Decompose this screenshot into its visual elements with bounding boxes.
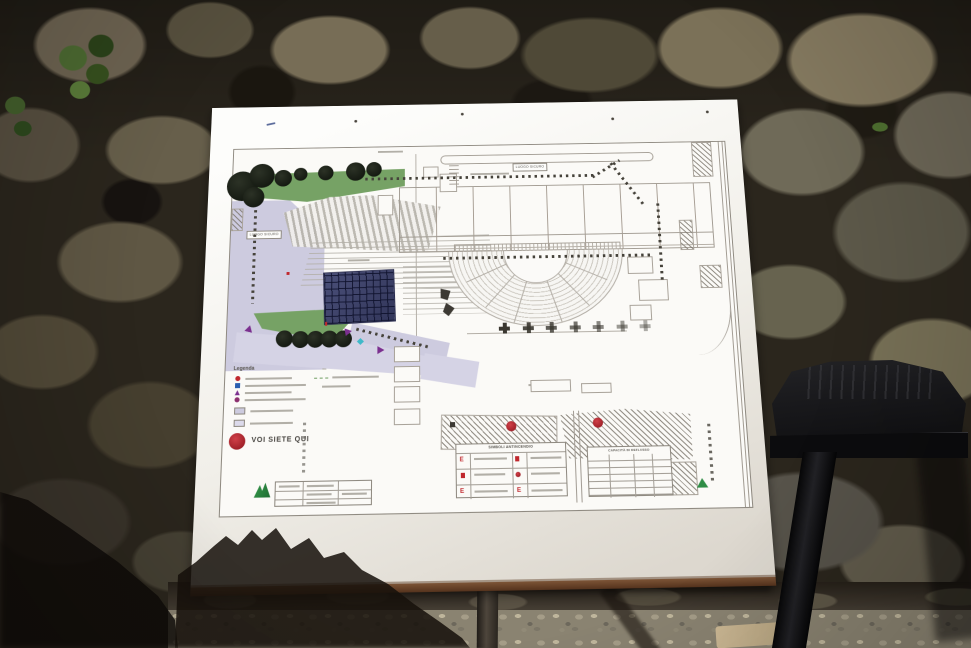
fire-point-icon bbox=[287, 272, 290, 275]
stairs-plan bbox=[449, 164, 459, 184]
column-base-icon bbox=[499, 323, 510, 334]
legend-dashed-line bbox=[314, 377, 328, 378]
service-room bbox=[530, 379, 571, 392]
exit-letter: E bbox=[460, 489, 464, 495]
legend-symbol-dot-icon bbox=[235, 376, 240, 381]
legend-item-text bbox=[245, 377, 292, 380]
hatched-structure bbox=[679, 220, 695, 250]
street-label bbox=[378, 151, 403, 153]
marker-square bbox=[450, 422, 455, 427]
exit-letter: E bbox=[517, 488, 521, 494]
fire-point-icon bbox=[325, 322, 327, 326]
service-room bbox=[394, 366, 420, 383]
safe-place-label: LUOGO SICURO bbox=[246, 230, 281, 239]
pen-mark bbox=[267, 122, 276, 126]
table-line bbox=[456, 451, 565, 454]
boundary-wall-plan bbox=[440, 152, 653, 165]
table-line bbox=[470, 453, 472, 499]
alarm-icon bbox=[515, 472, 520, 477]
legend-symbol-square-icon bbox=[235, 383, 240, 388]
column-base-row bbox=[499, 320, 669, 335]
stage-structure bbox=[323, 269, 396, 325]
evacuation-route-dots bbox=[707, 424, 714, 482]
dirt-speck bbox=[354, 120, 357, 123]
hatched-structure bbox=[691, 142, 714, 177]
legend-items bbox=[234, 375, 316, 407]
ruin-room bbox=[638, 279, 669, 301]
legend-item-text bbox=[245, 391, 292, 394]
table-line bbox=[512, 452, 514, 498]
service-room bbox=[394, 386, 420, 403]
legend-symbol-dot-icon bbox=[234, 397, 239, 402]
sign-board: LUOGO SICURO LUOGO SICURO bbox=[190, 99, 776, 596]
fire-symbols-table: SIMBOLI ANTINCENDIO E E E bbox=[455, 442, 568, 499]
legend-swatch-text bbox=[250, 409, 293, 412]
legend-title: Legenda bbox=[234, 367, 255, 372]
column-base-icon bbox=[639, 320, 651, 331]
capacity-table-title: CAPACITÀ DI DEFLUSSO bbox=[588, 448, 670, 453]
assembly-point-dot bbox=[593, 417, 604, 427]
column-base-icon bbox=[569, 321, 580, 332]
lectern-front-edge bbox=[770, 432, 968, 458]
safe-place-label: LUOGO SICURO bbox=[513, 163, 548, 172]
table-line bbox=[526, 452, 528, 498]
legend-swatches bbox=[233, 406, 326, 436]
you-are-here-marker bbox=[229, 433, 246, 450]
ruin-room bbox=[627, 256, 654, 274]
title-block bbox=[274, 480, 372, 507]
capacity-table: CAPACITÀ DI DEFLUSSO bbox=[587, 445, 674, 497]
ruin-room bbox=[630, 305, 653, 321]
region-logo-icon bbox=[254, 483, 271, 498]
fire-table-title: SIMBOLI ANTINCENDIO bbox=[456, 445, 565, 451]
hatched-structure bbox=[231, 208, 244, 231]
walkway-zone bbox=[420, 353, 479, 387]
ruin-room bbox=[378, 195, 394, 216]
legend-swatch bbox=[234, 407, 245, 414]
plant-cluster bbox=[52, 30, 122, 110]
plant-sprig bbox=[864, 118, 896, 136]
exit-letter: E bbox=[460, 457, 464, 463]
capacity-table-grid bbox=[588, 453, 673, 498]
plant-cluster bbox=[0, 88, 38, 146]
site-plan-map: LUOGO SICURO LUOGO SICURO bbox=[219, 141, 754, 518]
extinguisher-icon bbox=[515, 456, 519, 461]
column-base-icon bbox=[522, 322, 533, 333]
legend-swatch-text bbox=[250, 421, 293, 424]
dirt-speck bbox=[706, 111, 709, 114]
legend: Legenda bbox=[231, 364, 395, 438]
photo-of-map-sign: LUOGO SICURO LUOGO SICURO bbox=[0, 0, 971, 648]
tree-triangle-icon bbox=[696, 478, 708, 488]
dirt-speck bbox=[611, 117, 614, 120]
legend-item-text bbox=[245, 398, 306, 401]
you-are-here-label: VOI SIETE QUI bbox=[251, 436, 309, 444]
service-room bbox=[394, 408, 421, 425]
legend-swatch bbox=[234, 420, 245, 427]
lectern-sign-back bbox=[772, 360, 966, 444]
legend-symbol-triangle-icon bbox=[235, 390, 240, 395]
column-base-icon bbox=[616, 321, 628, 332]
column-base-icon bbox=[592, 321, 603, 332]
legend-item-text bbox=[245, 383, 306, 386]
road-curve bbox=[693, 280, 734, 355]
sign-post bbox=[477, 584, 499, 648]
extinguisher-icon bbox=[461, 473, 465, 478]
column-base-icon bbox=[546, 322, 557, 333]
service-room bbox=[394, 346, 420, 362]
lectern-ribs bbox=[800, 365, 938, 399]
table-line bbox=[457, 483, 567, 486]
table-line bbox=[457, 467, 566, 470]
dirt-speck bbox=[461, 113, 464, 116]
service-room bbox=[581, 383, 612, 394]
